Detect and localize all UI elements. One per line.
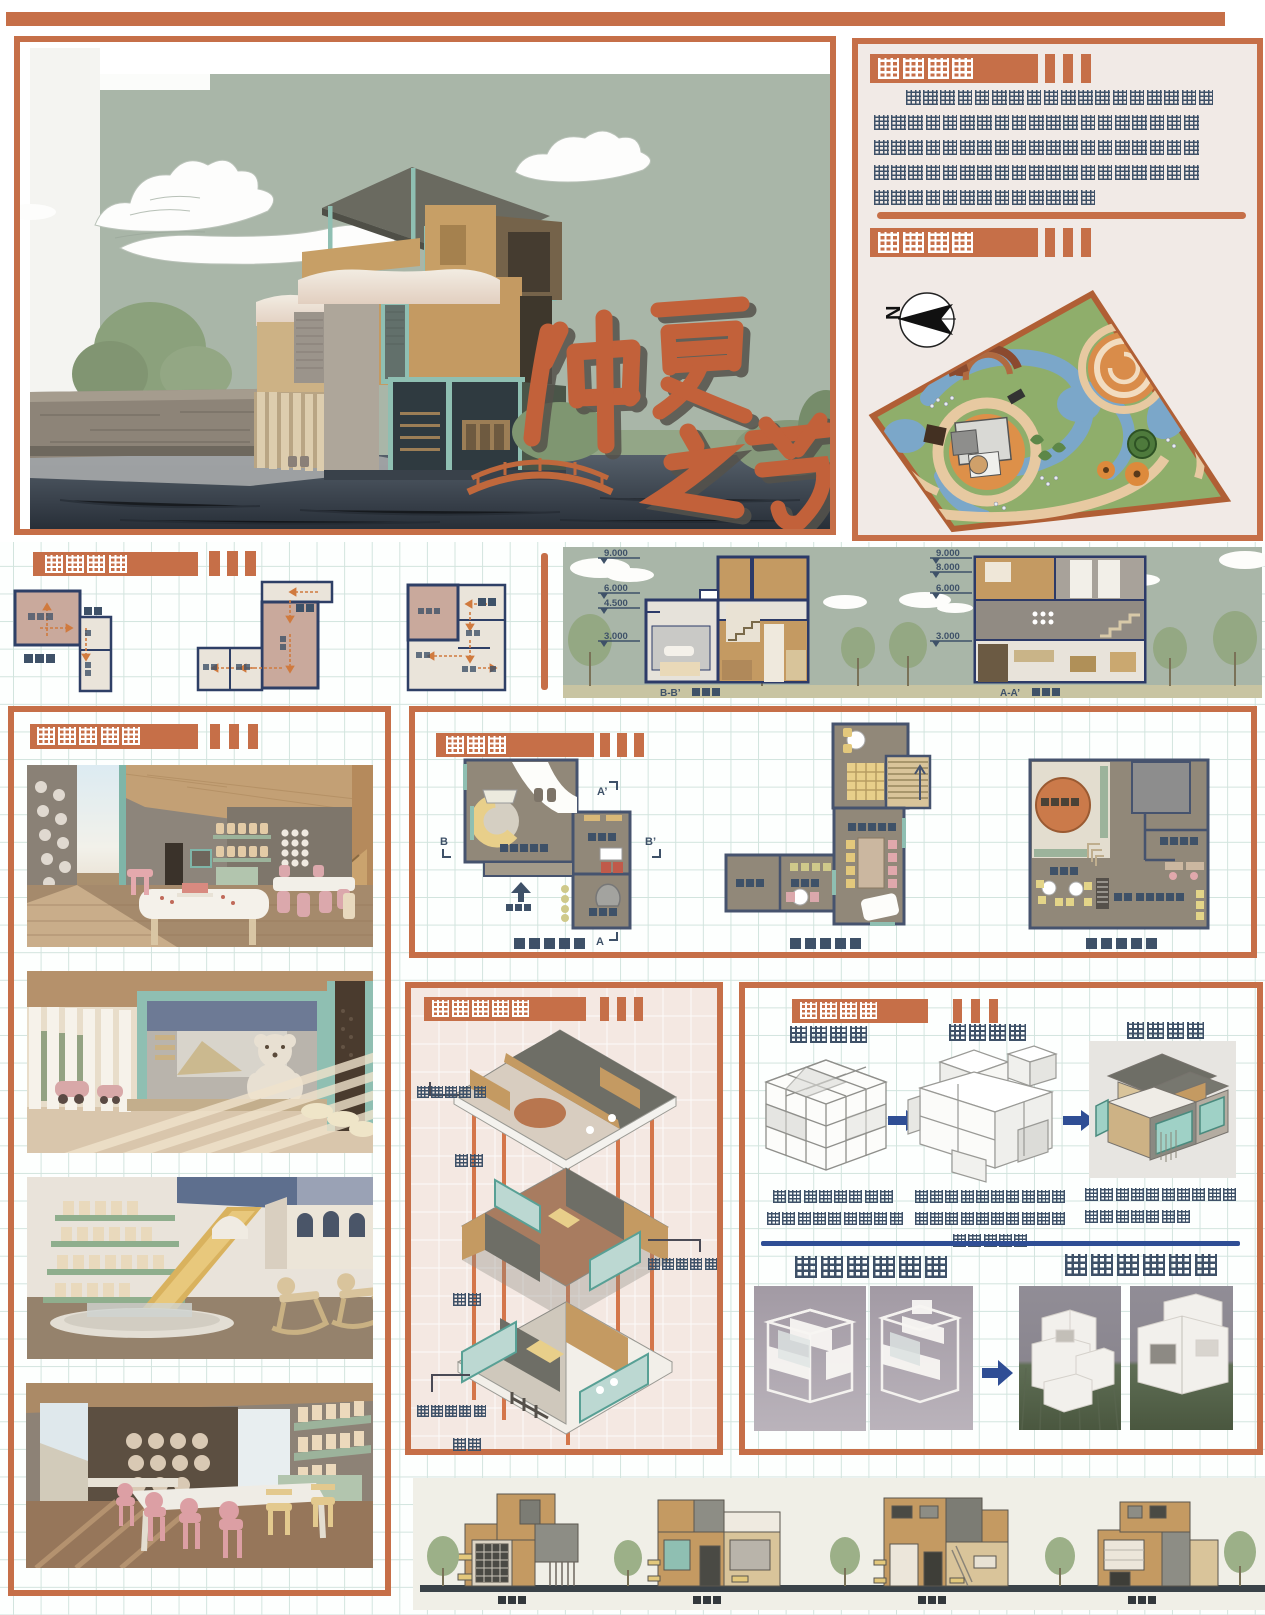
svg-text:B-B’: B-B’ bbox=[660, 688, 681, 699]
svg-text:A: A bbox=[596, 936, 604, 948]
svg-text:N: N bbox=[883, 306, 905, 320]
svg-text:A’: A’ bbox=[597, 786, 607, 798]
svg-text:B’: B’ bbox=[645, 836, 656, 848]
svg-text:A-A’: A-A’ bbox=[1000, 688, 1020, 699]
svg-text:B: B bbox=[440, 836, 448, 848]
